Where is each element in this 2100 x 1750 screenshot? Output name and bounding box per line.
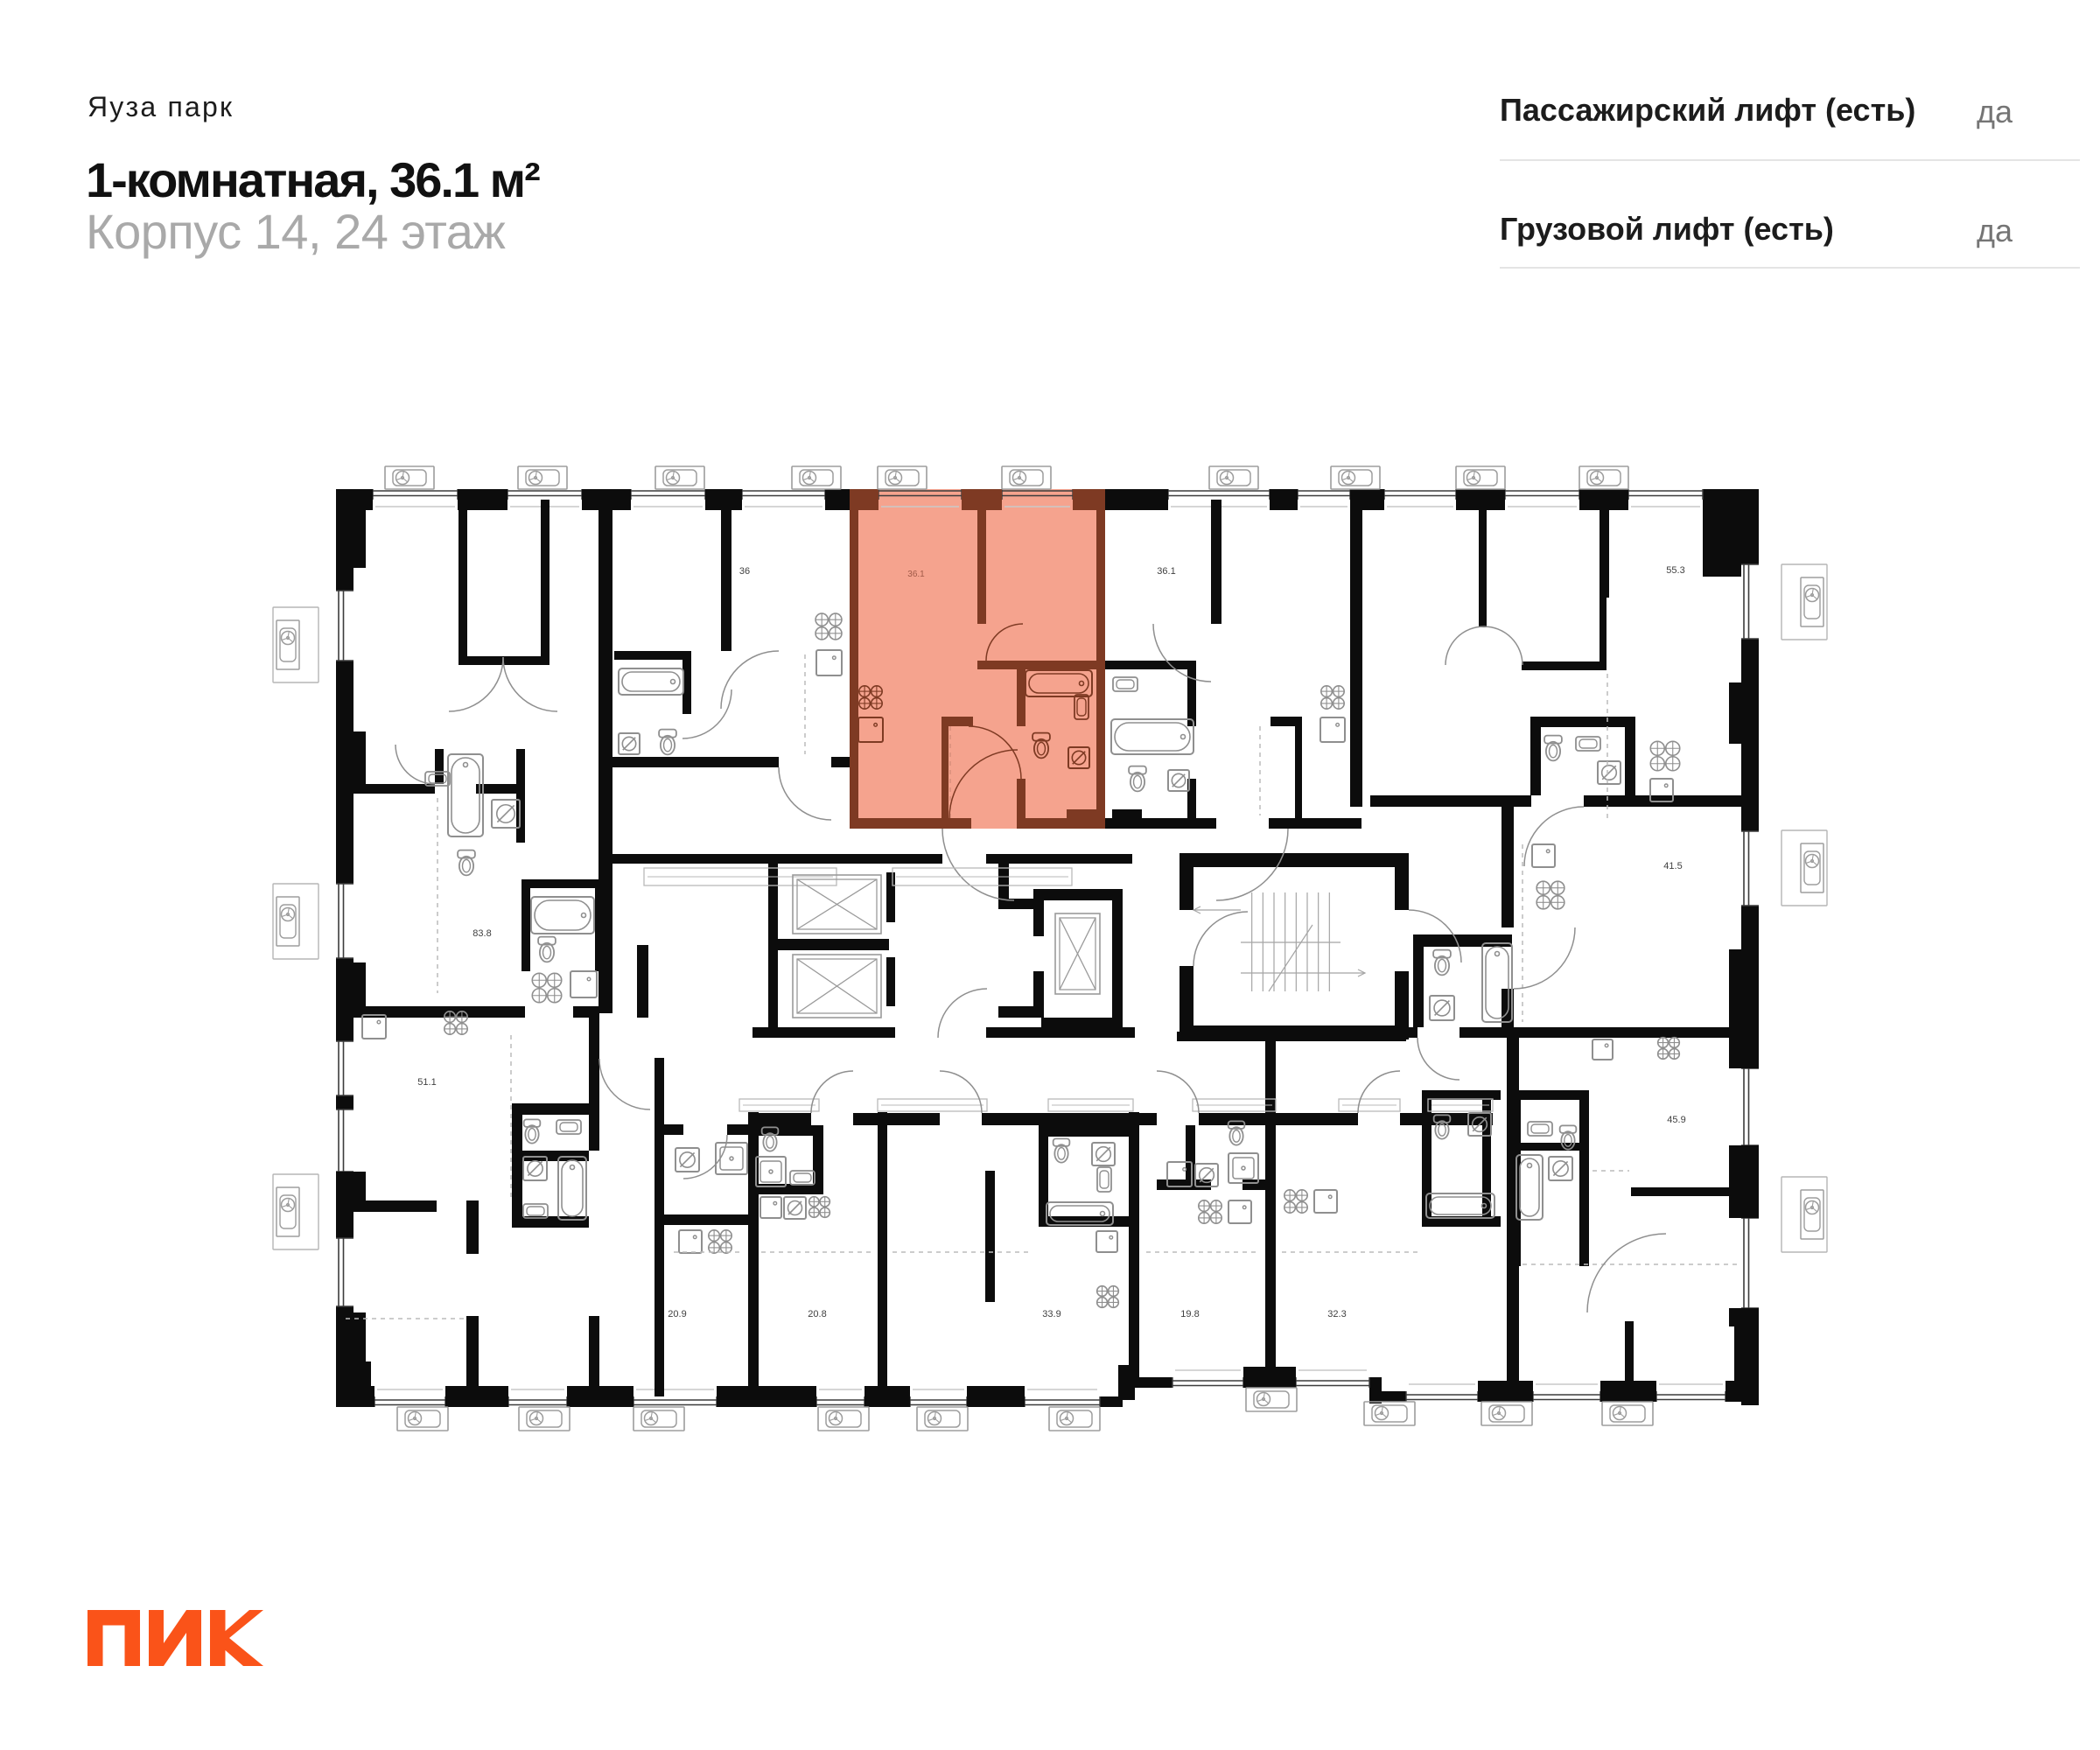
svg-text:51.1: 51.1 [417, 1077, 436, 1088]
svg-text:45.9: 45.9 [1667, 1115, 1685, 1125]
svg-text:20.9: 20.9 [668, 1309, 686, 1319]
svg-text:36.1: 36.1 [907, 570, 925, 579]
svg-text:20.8: 20.8 [808, 1309, 826, 1319]
svg-text:19.8: 19.8 [1180, 1309, 1199, 1319]
svg-text:36: 36 [739, 566, 750, 577]
svg-text:36.1: 36.1 [1157, 566, 1175, 577]
svg-text:41.5: 41.5 [1663, 861, 1682, 871]
svg-text:33.9: 33.9 [1042, 1309, 1060, 1319]
svg-text:32.3: 32.3 [1327, 1309, 1346, 1319]
svg-text:55.3: 55.3 [1666, 565, 1684, 576]
svg-text:83.8: 83.8 [472, 928, 491, 939]
